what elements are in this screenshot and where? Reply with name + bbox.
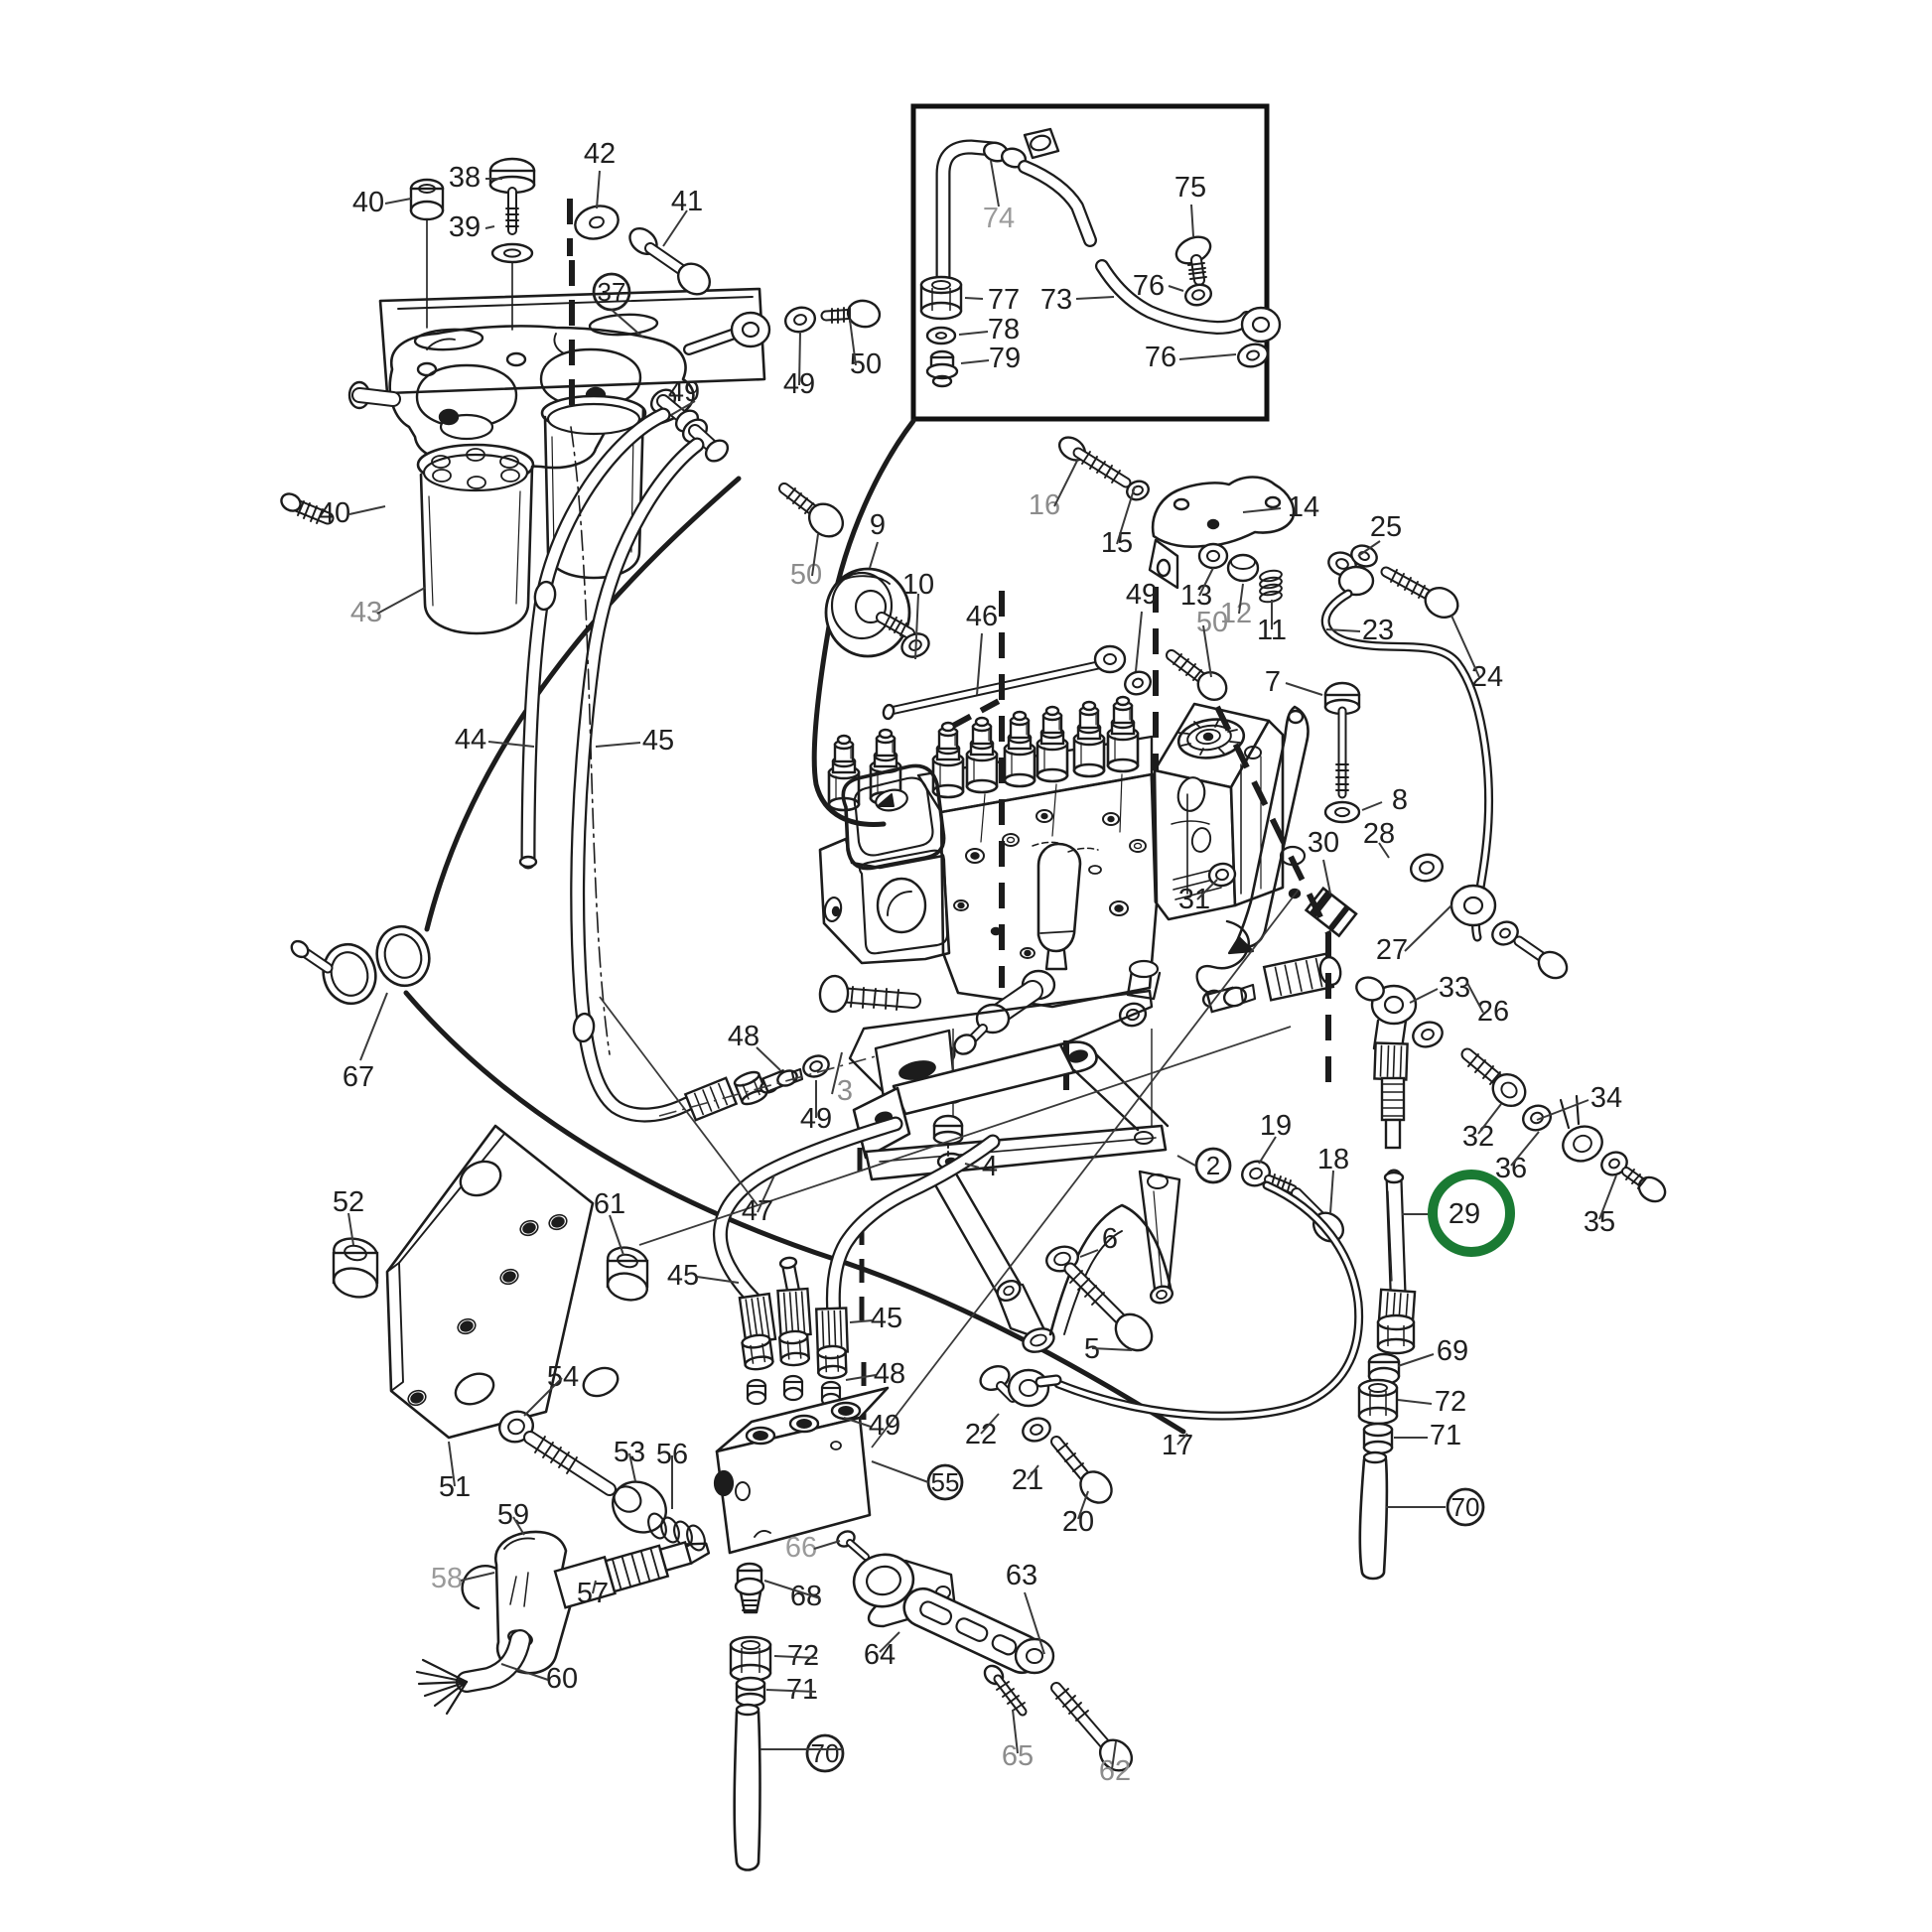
svg-text:74: 74 [983,203,1015,234]
svg-text:75: 75 [1174,172,1206,204]
svg-text:48: 48 [874,1358,905,1390]
svg-text:76: 76 [1145,342,1176,373]
svg-text:50: 50 [1196,607,1228,638]
svg-text:4: 4 [982,1151,998,1182]
svg-text:64: 64 [864,1639,896,1671]
svg-text:46: 46 [966,601,998,632]
svg-text:21: 21 [1012,1464,1043,1496]
svg-text:14: 14 [1288,491,1319,523]
svg-text:49: 49 [668,376,700,408]
svg-text:59: 59 [497,1499,529,1531]
svg-text:20: 20 [1062,1506,1094,1538]
svg-text:22: 22 [965,1419,997,1450]
svg-text:8: 8 [1392,784,1408,816]
svg-text:48: 48 [728,1021,759,1052]
svg-text:30: 30 [1308,827,1339,859]
svg-text:38: 38 [449,162,481,194]
svg-text:25: 25 [1370,511,1402,543]
svg-text:24: 24 [1471,661,1503,693]
svg-text:63: 63 [1006,1560,1037,1591]
svg-text:53: 53 [614,1437,645,1468]
svg-text:40: 40 [352,187,384,218]
svg-text:45: 45 [667,1260,699,1292]
svg-text:33: 33 [1439,972,1470,1004]
svg-text:36: 36 [1495,1153,1527,1184]
svg-text:68: 68 [790,1581,822,1612]
svg-text:78: 78 [988,314,1020,345]
svg-text:60: 60 [546,1663,578,1695]
svg-text:72: 72 [1435,1386,1466,1418]
svg-text:41: 41 [671,186,703,217]
svg-text:71: 71 [1430,1420,1461,1451]
svg-text:67: 67 [343,1061,374,1093]
svg-text:49: 49 [869,1410,900,1442]
svg-text:51: 51 [439,1471,471,1503]
svg-text:45: 45 [642,725,674,757]
svg-text:70: 70 [1451,1492,1480,1522]
svg-text:49: 49 [1126,579,1158,611]
svg-text:32: 32 [1462,1121,1494,1153]
svg-text:2: 2 [1206,1151,1220,1180]
svg-text:28: 28 [1363,818,1395,850]
svg-text:77: 77 [988,284,1020,316]
svg-text:7: 7 [1265,666,1281,698]
svg-text:31: 31 [1178,884,1210,915]
svg-text:40: 40 [319,497,350,529]
svg-text:23: 23 [1362,615,1394,646]
svg-text:66: 66 [785,1532,817,1564]
svg-text:76: 76 [1133,270,1165,302]
svg-text:39: 39 [449,211,481,243]
svg-text:34: 34 [1590,1082,1622,1114]
svg-text:73: 73 [1040,284,1072,316]
svg-text:37: 37 [598,277,626,307]
svg-text:29: 29 [1449,1198,1480,1230]
svg-text:27: 27 [1376,934,1408,966]
svg-text:17: 17 [1162,1430,1193,1461]
svg-text:42: 42 [584,138,616,170]
svg-text:70: 70 [811,1738,840,1768]
svg-text:58: 58 [431,1563,463,1594]
svg-text:6: 6 [1102,1223,1118,1255]
svg-text:9: 9 [870,509,886,541]
svg-text:44: 44 [455,724,486,756]
svg-text:62: 62 [1099,1755,1131,1787]
svg-text:50: 50 [790,559,822,591]
svg-text:45: 45 [871,1303,902,1334]
svg-text:79: 79 [989,343,1021,374]
svg-text:35: 35 [1584,1206,1615,1238]
svg-text:55: 55 [931,1467,960,1497]
svg-text:69: 69 [1437,1335,1468,1367]
svg-text:3: 3 [837,1075,853,1107]
